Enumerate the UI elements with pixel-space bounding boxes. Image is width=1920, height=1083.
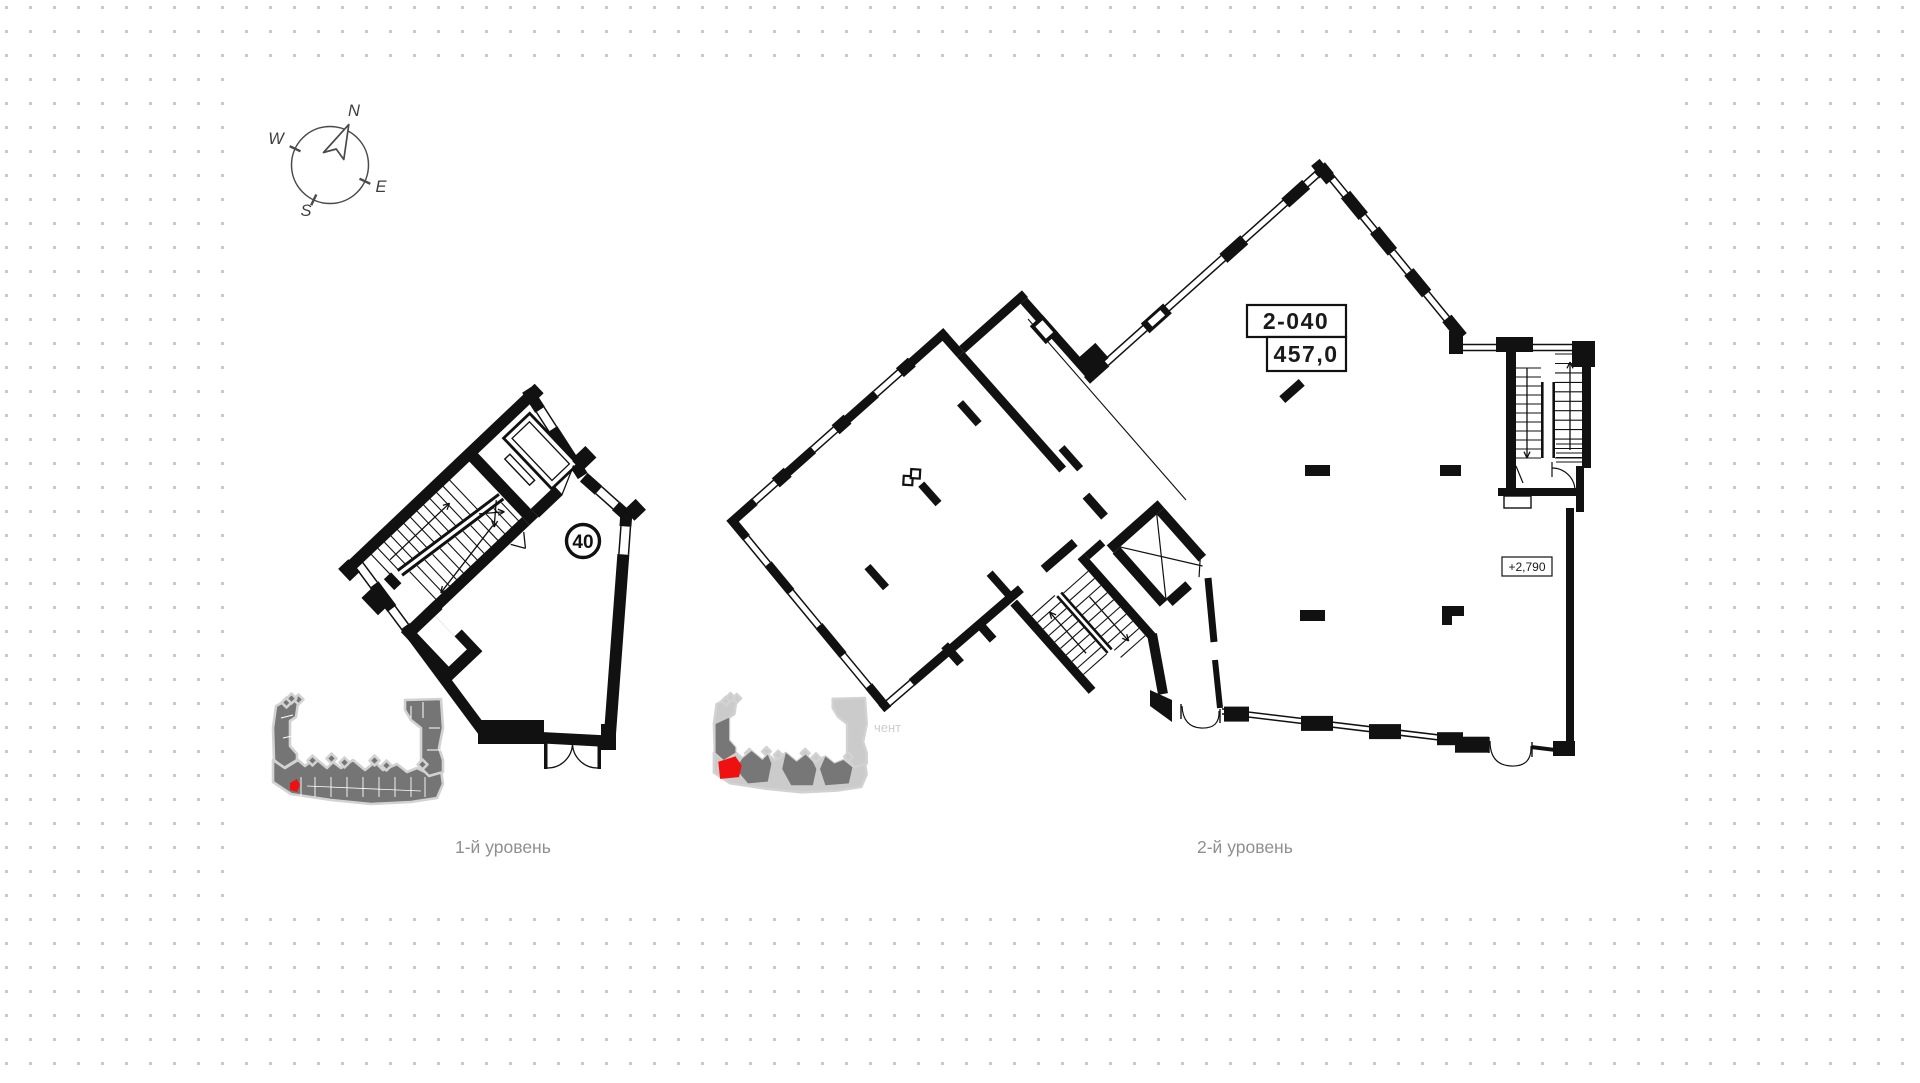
svg-text:1-й уровень: 1-й уровень [455,837,551,857]
svg-text:N: N [348,102,360,120]
svg-text:чент: чент [874,720,901,735]
svg-text:E: E [375,178,387,196]
svg-text:2-040: 2-040 [1263,308,1329,334]
svg-text:40: 40 [572,532,593,553]
svg-text:457,0: 457,0 [1273,341,1338,367]
svg-text:W: W [268,130,285,148]
svg-text:2-й уровень: 2-й уровень [1197,837,1293,857]
svg-text:S: S [300,202,311,220]
svg-text:+2,790: +2,790 [1508,560,1545,574]
